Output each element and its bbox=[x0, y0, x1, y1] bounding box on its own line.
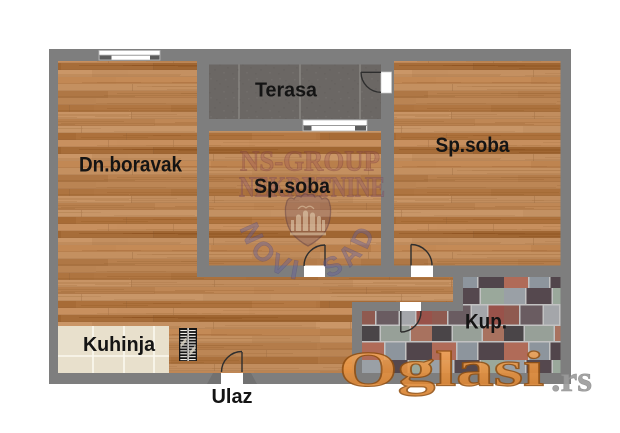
svg-text:Dn.boravak: Dn.boravak bbox=[79, 154, 182, 177]
svg-text:.rs: .rs bbox=[551, 359, 592, 399]
svg-text:Sp.soba: Sp.soba bbox=[254, 175, 330, 198]
svg-text:Terasa: Terasa bbox=[255, 80, 318, 102]
svg-text:Sp.soba: Sp.soba bbox=[436, 134, 510, 157]
svg-text:Ulaz: Ulaz bbox=[212, 385, 253, 408]
svg-text:Oglasi: Oglasi bbox=[339, 341, 544, 397]
svg-text:Kuhinja: Kuhinja bbox=[83, 333, 156, 356]
svg-text:Kup.: Kup. bbox=[465, 311, 507, 334]
